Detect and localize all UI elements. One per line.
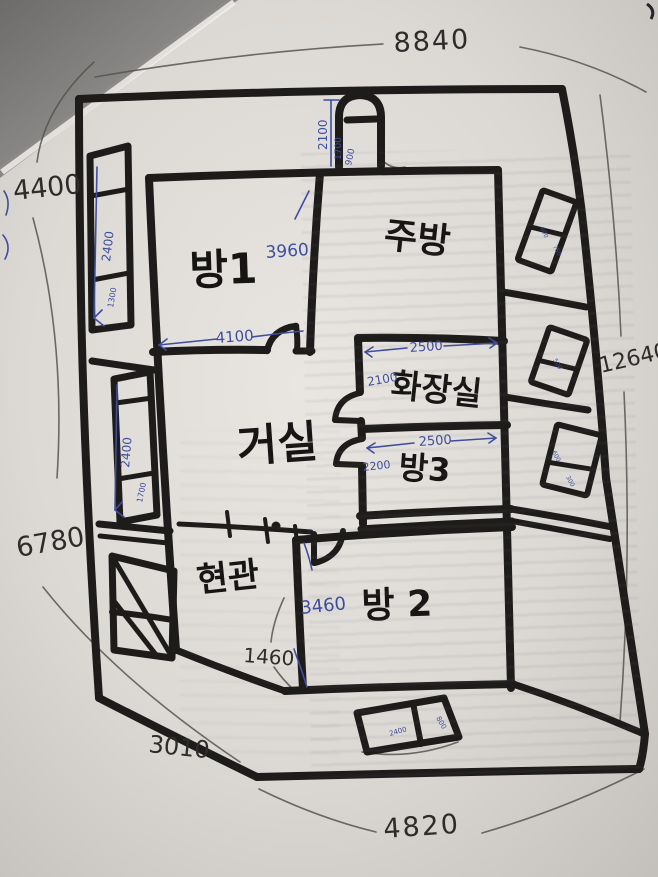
wall-room1-bottom: [153, 350, 267, 352]
dim-room1-h: 3960: [265, 240, 310, 263]
floorplan-sketch: 방1 주방 거실 화장실 방3 현관 방 2 8840 4400 12640 6…: [0, 0, 658, 877]
room-label-room1: 방1: [189, 244, 259, 295]
room-label-kitchen: 주방: [382, 215, 452, 263]
dim-room1-w: 4100: [215, 326, 254, 347]
dim-door-h: 2100: [316, 119, 330, 150]
dim-bath-w: 2500: [409, 339, 443, 356]
dim-door-mid: 1700: [334, 137, 344, 160]
room-label-entrance: 현관: [195, 555, 261, 601]
wall-bathroom-room3: [362, 425, 507, 429]
dim-bottom: 4820: [382, 809, 461, 845]
room-label-room3: 방3: [397, 448, 451, 490]
dim-entry-width: 1460: [243, 643, 295, 670]
room-label-living: 거실: [235, 416, 319, 473]
dim-top: 8840: [393, 24, 471, 59]
dim-room3-w: 2500: [418, 433, 452, 450]
room-label-room2: 방 2: [361, 584, 433, 627]
dim-win-l2-h: 2400: [118, 437, 135, 469]
floorplan-photo: 방1 주방 거실 화장실 방3 현관 방 2 8840 4400 12640 6…: [0, 0, 658, 877]
wall-bathroom-left: [358, 338, 360, 392]
